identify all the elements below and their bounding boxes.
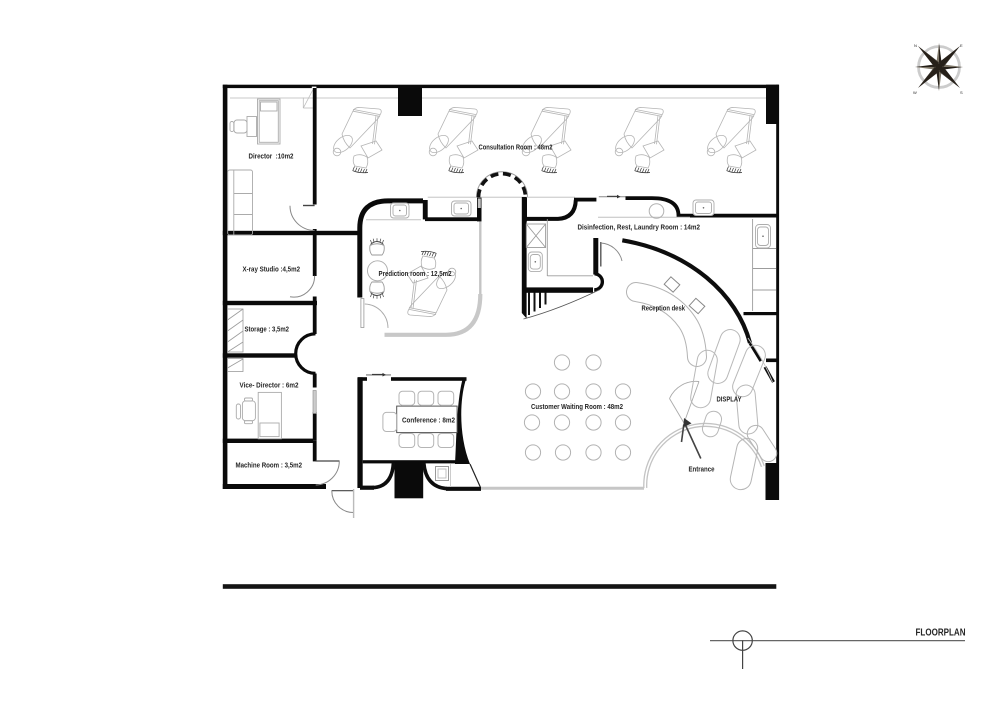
svg-text:X-ray Studio :4,5m2: X-ray Studio :4,5m2 [243, 265, 301, 274]
svg-text:FLOORPLAN: FLOORPLAN [916, 627, 966, 639]
svg-text:N: N [914, 43, 917, 48]
svg-text:W: W [913, 90, 917, 95]
svg-text:Reception desk: Reception desk [642, 304, 686, 313]
svg-text:Disinfection, Rest, Laundry Ro: Disinfection, Rest, Laundry Room : 14m2 [578, 223, 701, 232]
svg-text:E: E [960, 43, 963, 48]
svg-text:Storage : 3,5m2: Storage : 3,5m2 [245, 325, 290, 334]
svg-text:Vice- Director : 6m2: Vice- Director : 6m2 [240, 381, 299, 390]
svg-text:Machine Room : 3,5m2: Machine Room : 3,5m2 [236, 461, 303, 470]
svg-text:Prediction room : 12,5m2: Prediction room : 12,5m2 [379, 269, 452, 278]
svg-text:Entrance: Entrance [689, 465, 715, 474]
svg-text:Consultation Room : 48m2: Consultation Room : 48m2 [479, 143, 553, 152]
svg-text:Director :10m2: Director :10m2 [249, 152, 294, 161]
svg-text:DISPLAY: DISPLAY [717, 395, 742, 404]
svg-text:S: S [960, 90, 963, 95]
svg-text:Customer Waiting Room : 48m2: Customer Waiting Room : 48m2 [531, 402, 623, 411]
svg-text:Conference : 8m2: Conference : 8m2 [402, 416, 455, 425]
